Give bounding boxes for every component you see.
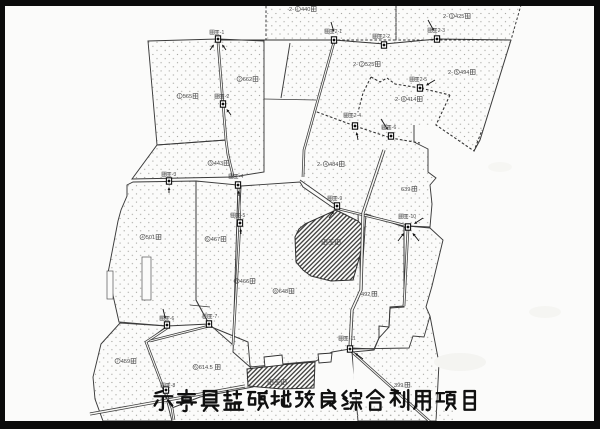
svg-text:2-5: 2-5: [420, 77, 427, 83]
svg-text:648: 648: [279, 289, 288, 295]
svg-text:484: 484: [329, 162, 338, 168]
svg-text:-6: -6: [170, 316, 175, 322]
svg-text:-9: -9: [338, 196, 343, 202]
svg-text:425: 425: [455, 14, 464, 20]
svg-text:-6: -6: [392, 125, 397, 131]
svg-text:-10: -10: [409, 214, 416, 220]
svg-text:440: 440: [301, 7, 310, 13]
svg-text:2-2: 2-2: [383, 34, 390, 40]
svg-text:565: 565: [183, 94, 192, 100]
svg-text:459: 459: [121, 359, 130, 365]
svg-text:494: 494: [460, 70, 469, 76]
svg-text:-3: -3: [172, 172, 177, 178]
svg-text:443: 443: [214, 161, 223, 167]
svg-text:466: 466: [240, 279, 249, 285]
svg-text:2-: 2-: [289, 7, 294, 13]
svg-text:399: 399: [394, 383, 403, 389]
svg-text:2-: 2-: [448, 70, 453, 76]
svg-text:-7: -7: [213, 314, 218, 320]
svg-text:2-: 2-: [317, 162, 322, 168]
svg-text:-8: -8: [171, 383, 176, 389]
svg-text:-11: -11: [349, 336, 356, 342]
svg-text:639: 639: [401, 187, 410, 193]
svg-text:-1: -1: [220, 30, 225, 36]
svg-text:2-: 2-: [395, 97, 400, 103]
svg-text:-4: -4: [239, 174, 244, 180]
svg-text:2-1: 2-1: [335, 29, 342, 35]
svg-text:2-4: 2-4: [354, 113, 361, 119]
svg-text:414: 414: [407, 97, 416, 103]
svg-text:2-: 2-: [353, 62, 358, 68]
svg-text:501: 501: [146, 235, 155, 241]
svg-text:467: 467: [211, 237, 220, 243]
svg-text:662: 662: [243, 77, 252, 83]
svg-text:614.5: 614.5: [199, 365, 213, 371]
svg-text:-2: -2: [225, 94, 230, 100]
svg-text:2-: 2-: [443, 14, 448, 20]
svg-text:492: 492: [361, 292, 370, 298]
svg-text:2-3: 2-3: [438, 28, 445, 34]
svg-text:-5: -5: [241, 213, 246, 219]
svg-text:525: 525: [365, 62, 374, 68]
